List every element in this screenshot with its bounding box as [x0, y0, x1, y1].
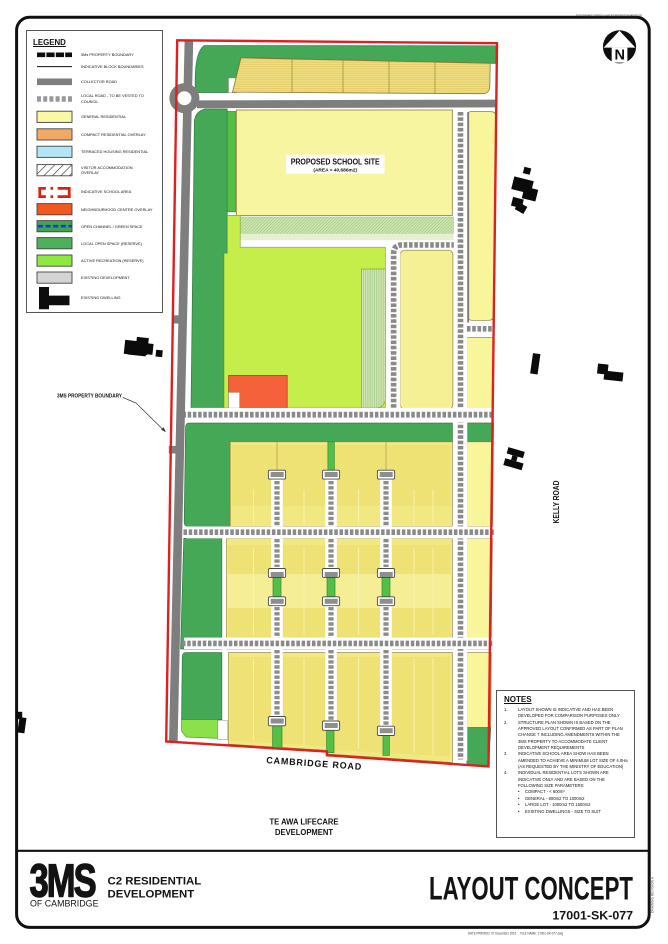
- svg-text:DEVELOPMENT: DEVELOPMENT: [275, 827, 334, 837]
- svg-text:PROPOSED SCHOOL SITE: PROPOSED SCHOOL SITE: [291, 157, 380, 167]
- svg-text:(AREA = 40,686m2): (AREA = 40,686m2): [313, 168, 357, 174]
- svg-text:LAYOUT CONCEPT: LAYOUT CONCEPT: [429, 871, 633, 907]
- svg-text:17001-SK-077: 17001-SK-077: [552, 909, 633, 923]
- svg-text:TE AWA LIFECARE: TE AWA LIFECARE: [270, 817, 339, 827]
- svg-text:OF CAMBRIDGE: OF CAMBRIDGE: [30, 899, 99, 910]
- svg-text:KELLY ROAD: KELLY ROAD: [551, 481, 561, 524]
- svg-text:DEVELOPMENT: DEVELOPMENT: [108, 889, 195, 901]
- svg-text:C2 RESIDENTIAL: C2 RESIDENTIAL: [108, 876, 202, 888]
- svg-text:3MS PROPERTY BOUNDARY: 3MS PROPERTY BOUNDARY: [57, 394, 123, 400]
